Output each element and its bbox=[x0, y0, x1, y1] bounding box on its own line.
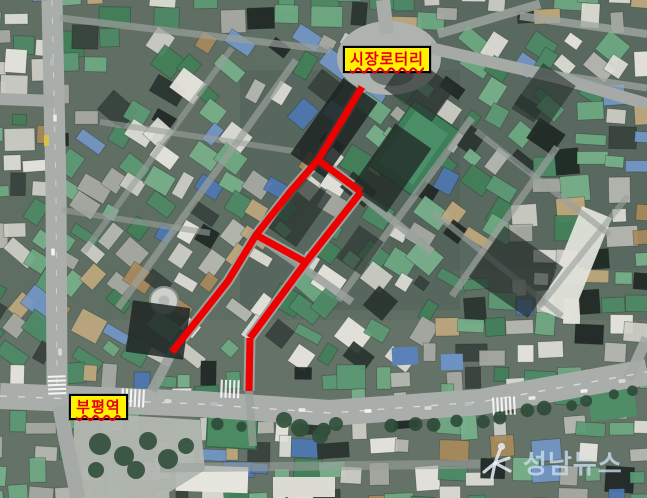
satellite-map: 시장로터리 부평역 성남뉴스 bbox=[0, 0, 647, 498]
label-bupyeong-station: 부평역 bbox=[69, 394, 128, 420]
satellite-imagery bbox=[0, 0, 647, 498]
label-market-rotary-text: 시장로터리 bbox=[350, 52, 424, 67]
label-bupyeong-station-text: 부평역 bbox=[76, 400, 120, 415]
label-market-rotary: 시장로터리 bbox=[343, 46, 431, 73]
